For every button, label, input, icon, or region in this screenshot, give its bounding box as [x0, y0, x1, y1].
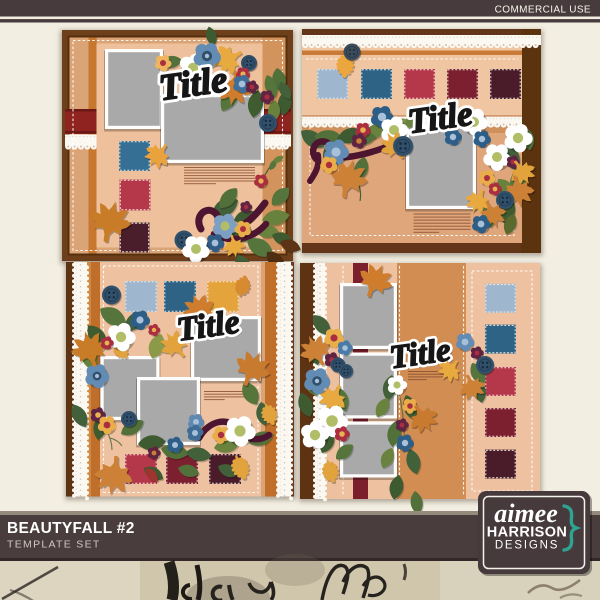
- svg-text:COMMERCIAL USE: COMMERCIAL USE: [495, 5, 591, 16]
- svg-text:TEMPLATE SET: TEMPLATE SET: [7, 539, 101, 551]
- svg-text:HARRISON: HARRISON: [487, 525, 568, 541]
- svg-text:DESIGNS: DESIGNS: [495, 540, 559, 552]
- svg-text:BEAUTYFALL #2: BEAUTYFALL #2: [7, 520, 135, 537]
